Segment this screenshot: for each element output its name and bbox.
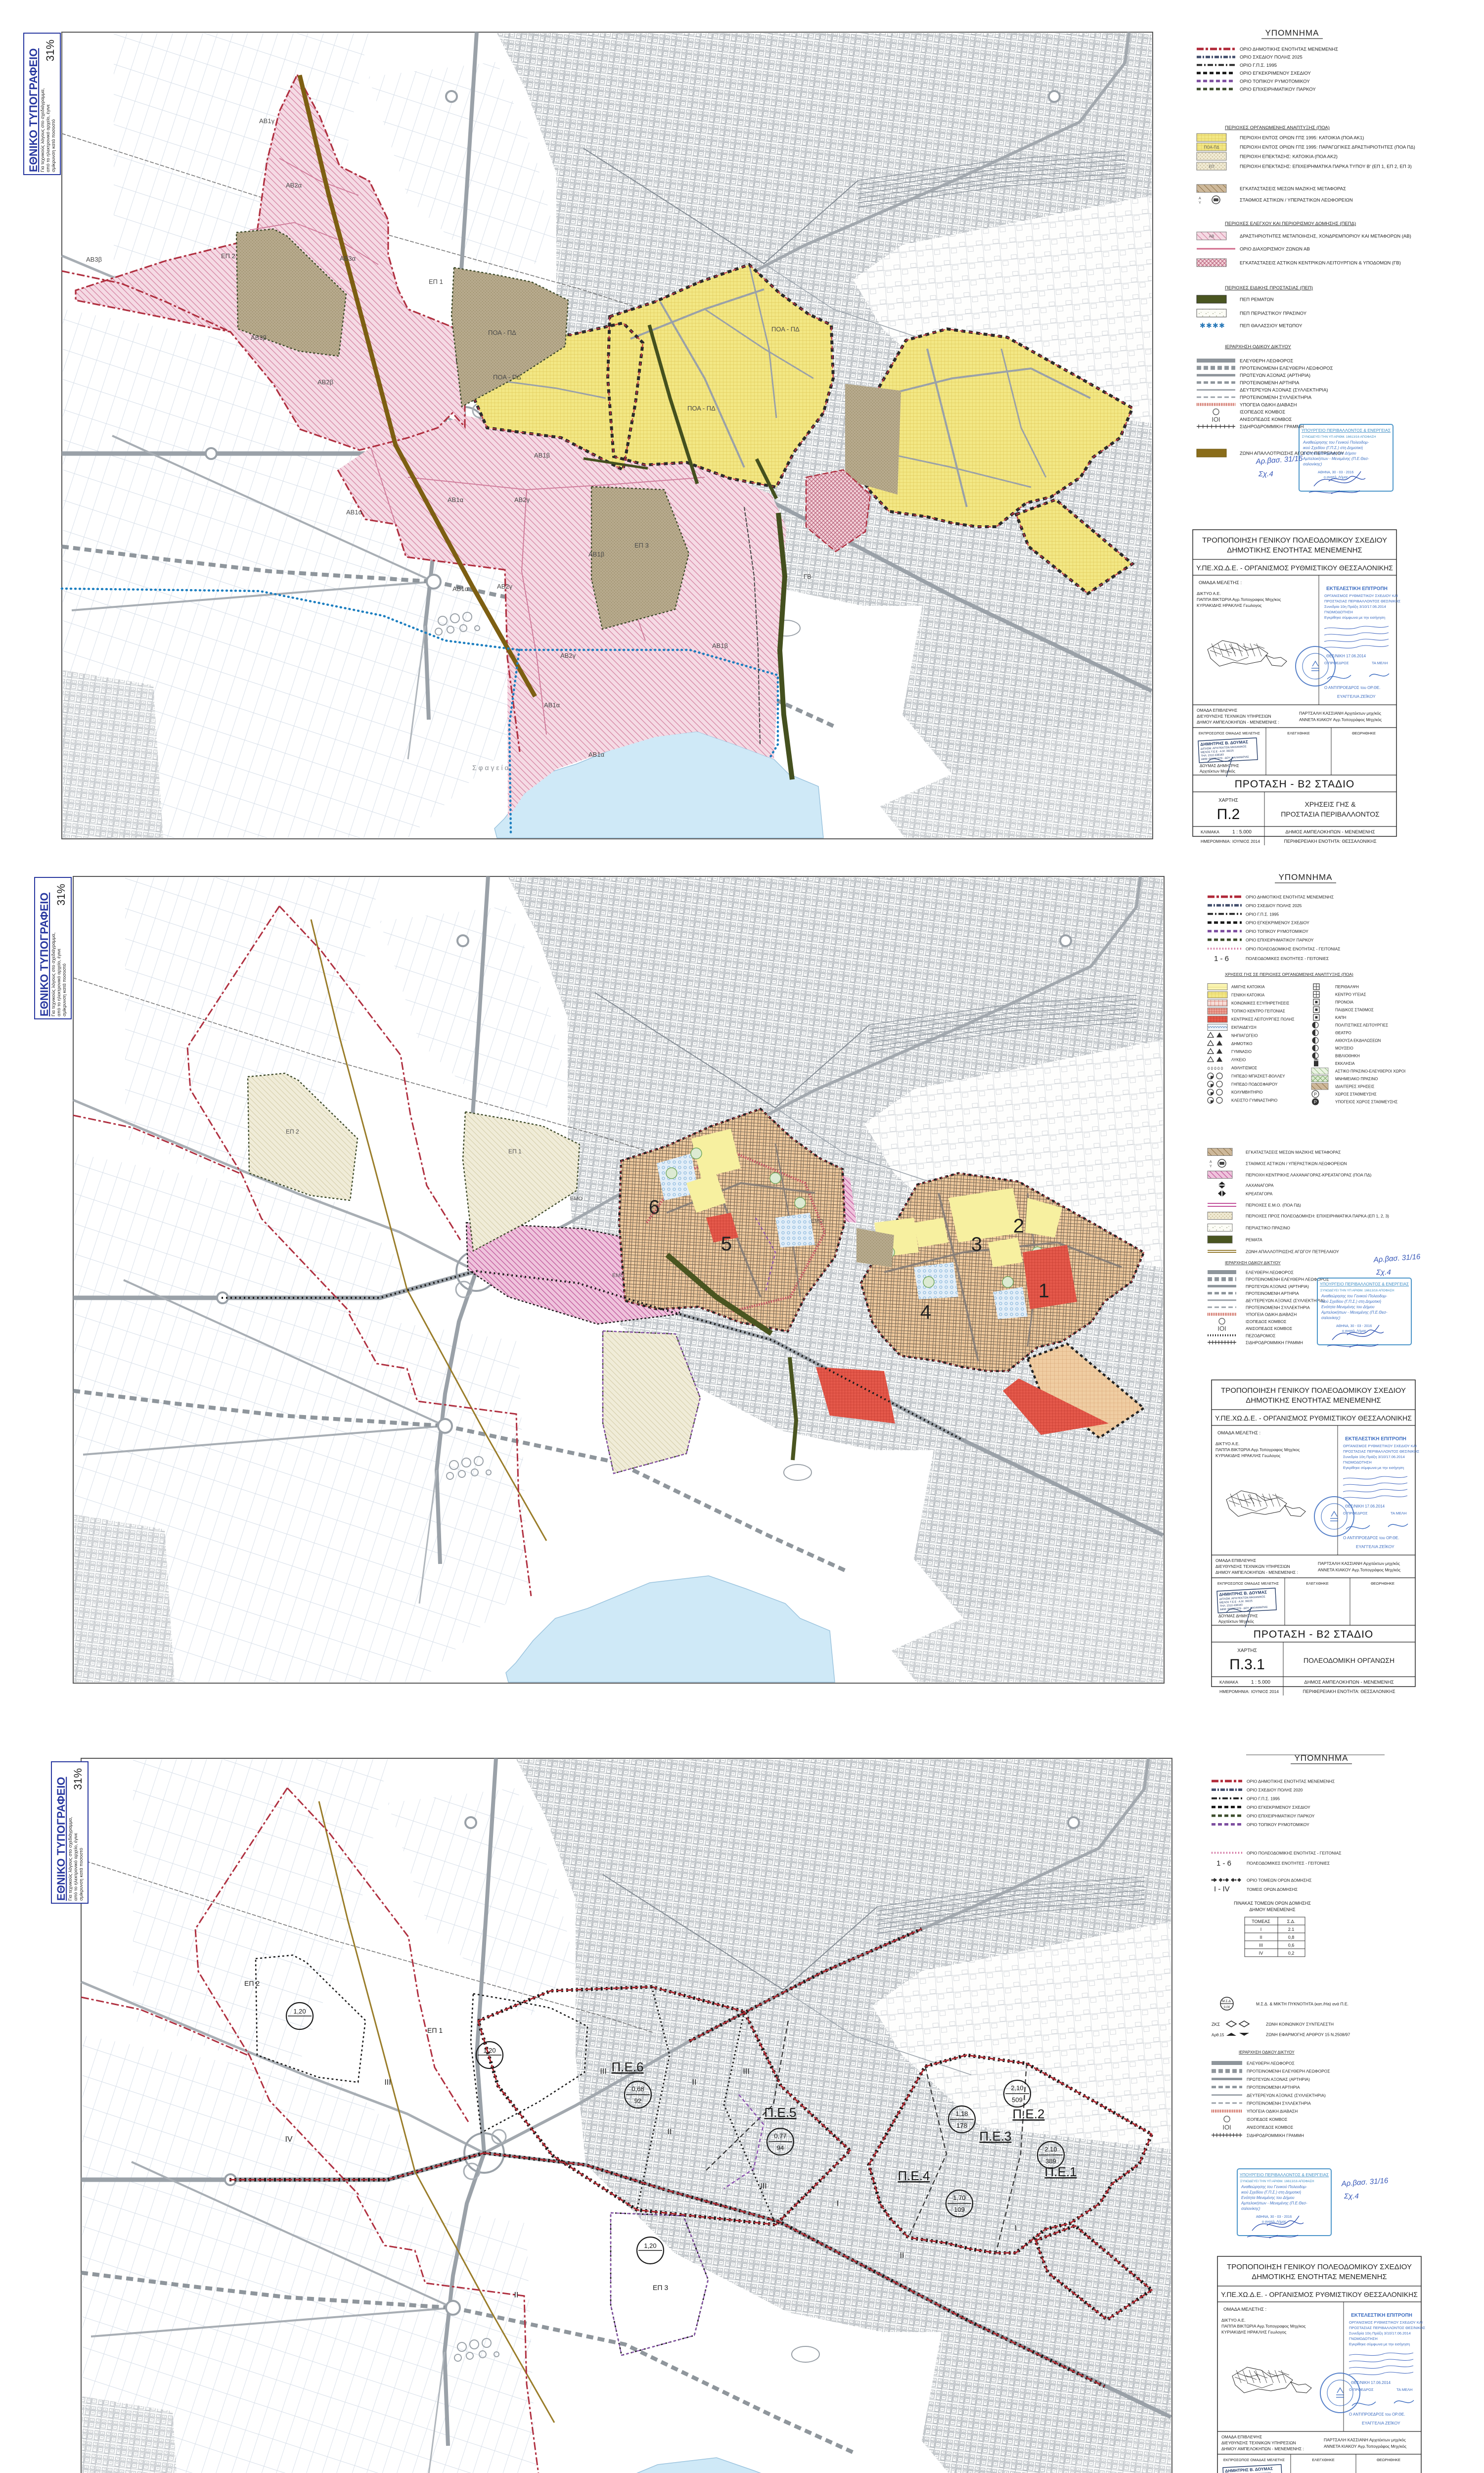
svg-text:ΙΔΙΑΙΤΕΡΕΣ ΧΡΗΣΕΙΣ: ΙΔΙΑΙΤΕΡΕΣ ΧΡΗΣΕΙΣ	[1335, 1085, 1374, 1089]
svg-text:ΟΡΙΟ ΕΓΚΕΚΡΙΜΕΝΟΥ ΣΧΕΔΙΟΥ: ΟΡΙΟ ΕΓΚΕΚΡΙΜΕΝΟΥ ΣΧΕΔΙΟΥ	[1240, 71, 1311, 76]
svg-text:ΙΟΙ: ΙΟΙ	[1217, 1325, 1226, 1332]
svg-text:σμίκρυνση κατά ποσοστό: σμίκρυνση κατά ποσοστό	[79, 1848, 84, 1901]
svg-text:ΠΡΟΣΤΑΣΙΑΣ ΠΕΡΙΒΑΛΛΟΝΤΟΣ ΘΕΣ/Ν: ΠΡΟΣΤΑΣΙΑΣ ΠΕΡΙΒΑΛΛΟΝΤΟΣ ΘΕΣ/ΝΙΚΗΣ	[1349, 2326, 1425, 2330]
svg-text:ΕΘΝΙΚΟ ΤΥΠΟΓΡΑΦΕΙΟ: ΕΘΝΙΚΟ ΤΥΠΟΓΡΑΦΕΙΟ	[27, 48, 40, 172]
svg-text:Αναθεώρησης του Γενικού Πολ: Αναθεώρησης του Γενικού Πολεοδομ-	[1303, 440, 1369, 445]
svg-text:✱: ✱	[1219, 321, 1225, 329]
svg-text:ΟΜΑΔΑ ΜΕΛΕΤΗΣ :: ΟΜΑΔΑ ΜΕΛΕΤΗΣ :	[1223, 2307, 1266, 2312]
svg-text:Ενότητα Μενεμένης του Δήμου: Ενότητα Μενεμένης του Δήμου	[1241, 2196, 1295, 2200]
svg-text:σαλονίκης): σαλονίκης)	[1303, 462, 1322, 466]
svg-text:ΠΡΟΤΕΙΝΟΜΕΝΗ ΣΥΛΛΕΚΤΗΡΙΑ: ΠΡΟΤΕΙΝΟΜΕΝΗ ΣΥΛΛΕΚΤΗΡΙΑ	[1246, 1305, 1310, 1310]
svg-text:Π.Ε.1: Π.Ε.1	[1044, 2164, 1077, 2179]
svg-text:ΟΡΙΟ ΕΠΙΧΕΙΡΗΜΑΤΙΚΟΥ ΠΑΡΚΟΥ: ΟΡΙΟ ΕΠΙΧΕΙΡΗΜΑΤΙΚΟΥ ΠΑΡΚΟΥ	[1240, 87, 1316, 92]
svg-text:Π.Ε.4: Π.Ε.4	[898, 2168, 930, 2183]
svg-text:ΟΡΙΟ ΕΠΙΧΕΙΡΗΜΑΤΙΚΟΥ ΠΑΡΚΟΥ: ΟΡΙΟ ΕΠΙΧΕΙΡΗΜΑΤΙΚΟΥ ΠΑΡΚΟΥ	[1246, 938, 1314, 943]
svg-text:Ο ΠΡΟΕΔΡΟΣ: Ο ΠΡΟΕΔΡΟΣ	[1324, 661, 1349, 665]
svg-text:Α: Α	[1199, 197, 1201, 200]
svg-text:ΥΠΟΓΕΙΑ ΟΔΙΚΗ ΔΙΑΒΑΣΗ: ΥΠΟΓΕΙΑ ΟΔΙΚΗ ΔΙΑΒΑΣΗ	[1246, 1312, 1297, 1317]
svg-text:ΥΠΟΥΡΓΕΙΟ ΠΕΡΙΒΑΛΛΟΝΤΟΣ & ΕΝΕΡ: ΥΠΟΥΡΓΕΙΟ ΠΕΡΙΒΑΛΛΟΝΤΟΣ & ΕΝΕΡΓΕΙΑΣ	[1320, 1282, 1409, 1286]
svg-text:ΠΕΡΙΟΧΕΣ ΕΙΔΙΚΗΣ ΠΡΟΣΤΑΣΙΑΣ (Π: ΠΕΡΙΟΧΕΣ ΕΙΔΙΚΗΣ ΠΡΟΣΤΑΣΙΑΣ (ΠΕΠ)	[1225, 285, 1313, 291]
svg-text:ΕΛΕΥΘΕΡΗ ΛΕΩΦΟΡΟΣ: ΕΛΕΥΘΕΡΗ ΛΕΩΦΟΡΟΣ	[1240, 359, 1293, 364]
svg-text:ΜΟΥΣΕΙΟ: ΜΟΥΣΕΙΟ	[1335, 1046, 1353, 1051]
svg-text:σαλονίκης): σαλονίκης)	[1321, 1316, 1341, 1320]
svg-text:ΟΡΙΟ ΣΧΕΔΙΟΥ ΠΟΛΗΣ 2025: ΟΡΙΟ ΣΧΕΔΙΟΥ ΠΟΛΗΣ 2025	[1246, 903, 1302, 908]
svg-text:ΙΣΟΠΕΔΟΣ ΚΟΜΒΟΣ: ΙΣΟΠΕΔΟΣ ΚΟΜΒΟΣ	[1247, 2117, 1287, 2122]
svg-text:ΑΝΙΣΟΠΕΔΟΣ ΚΟΜΒΟΣ: ΑΝΙΣΟΠΕΔΟΣ ΚΟΜΒΟΣ	[1240, 417, 1292, 422]
svg-text:ΔΙΚΤΥΟ Α.Ε.: ΔΙΚΤΥΟ Α.Ε.	[1221, 2318, 1246, 2323]
svg-text:ΑΒ1α: ΑΒ1α	[452, 585, 469, 593]
svg-text:ΤΑ ΜΕΛΗ: ΤΑ ΜΕΛΗ	[1372, 661, 1388, 665]
svg-text:ΠΕΡΙΘΑΛΨΗ: ΠΕΡΙΘΑΛΨΗ	[1335, 985, 1359, 989]
svg-text:0 0 0 0 0: 0 0 0 0 0	[1208, 1066, 1223, 1071]
svg-text:4: 4	[920, 1301, 931, 1323]
svg-text:ΕΚΠΡΟΣΩΠΟΣ ΟΜΑΔΑΣ ΜΕΛΕΤΗΣ: ΕΚΠΡΟΣΩΠΟΣ ΟΜΑΔΑΣ ΜΕΛΕΤΗΣ	[1217, 1581, 1279, 1586]
svg-text:Αμπελοκήπων - Μενεμένης (Π.Ε.Θ: Αμπελοκήπων - Μενεμένης (Π.Ε.Θεσ-	[1321, 1310, 1388, 1315]
svg-text:Ενότητα Μενεμένης του Δήμου: Ενότητα Μενεμένης του Δήμου	[1321, 1305, 1375, 1309]
svg-text:ΠΡΟΣΤΑΣΙΑΣ ΠΕΡΙΒΑΛΛΟΝΤΟΣ ΘΕΣ/Ν: ΠΡΟΣΤΑΣΙΑΣ ΠΕΡΙΒΑΛΛΟΝΤΟΣ ΘΕΣ/ΝΙΚΗΣ	[1343, 1449, 1419, 1454]
svg-text:P: P	[1314, 1092, 1317, 1097]
svg-text:ΠΡΟΤΑΣΗ - Β2 ΣΤΑΔΙΟ: ΠΡΟΤΑΣΗ - Β2 ΣΤΑΔΙΟ	[1254, 1629, 1374, 1640]
svg-text:31%: 31%	[72, 1768, 84, 1790]
svg-text:109: 109	[954, 2206, 965, 2213]
svg-text:ΚΟΙΝΩΝΙΚΕΣ ΕΞΥΠΗΡΕΤΗΣΕΙΣ: ΚΟΙΝΩΝΙΚΕΣ ΕΞΥΠΗΡΕΤΗΣΕΙΣ	[1231, 1001, 1289, 1006]
svg-text:ΖΩΝΗ ΕΦΑΡΜΟΓΗΣ ΑΡΘΡΟΥ 15 Ν.250: ΖΩΝΗ ΕΦΑΡΜΟΓΗΣ ΑΡΘΡΟΥ 15 Ν.2508/97	[1266, 2032, 1350, 2037]
svg-text:Ενότητα Μενεμένης του Δήμου: Ενότητα Μενεμένης του Δήμου	[1303, 451, 1356, 456]
svg-text:ΤΟΠΙΚΟ ΚΕΝΤΡΟ ΓΕΙΤΟΝΙΑΣ: ΤΟΠΙΚΟ ΚΕΝΤΡΟ ΓΕΙΤΟΝΙΑΣ	[1231, 1009, 1285, 1013]
svg-text:1,20: 1,20	[644, 2242, 656, 2249]
svg-text:ΔΗΜΟΣ ΑΜΠΕΛΟΚΗΠΩΝ - ΜΕΝΕΜΕΝΗΣ: ΔΗΜΟΣ ΑΜΠΕΛΟΚΗΠΩΝ - ΜΕΝΕΜΕΝΗΣ	[1304, 1680, 1394, 1685]
svg-text:31%: 31%	[44, 40, 56, 61]
svg-text:ΔΙΚΤΥΟ Α.Ε.: ΔΙΚΤΥΟ Α.Ε.	[1215, 1441, 1240, 1446]
svg-text:ΠΡΟΤΕΙΝΟΜΕΝΗ ΣΥΛΛΕΚΤΗΡΙΑ: ΠΡΟΤΕΙΝΟΜΕΝΗ ΣΥΛΛΕΚΤΗΡΙΑ	[1247, 2101, 1311, 2106]
svg-text:Σ φ α γ ε ί α: Σ φ α γ ε ί α	[472, 764, 509, 772]
svg-text:Αμπελοκήπων - Μενεμένης (Π.Ε.Θ: Αμπελοκήπων - Μενεμένης (Π.Ε.Θεσ-	[1241, 2201, 1307, 2205]
svg-text:ΣΙΔΗΡΟΔΡΟΜΜΙΚΗ ΓΡΑΜΜΗ: ΣΙΔΗΡΟΔΡΟΜΜΙΚΗ ΓΡΑΜΜΗ	[1240, 424, 1304, 430]
svg-text:ΟΜΑΔΑ ΕΠΙΒΛΕΨΗΣ: ΟΜΑΔΑ ΕΠΙΒΛΕΨΗΣ	[1197, 708, 1237, 713]
svg-text:ΥΠΟΥΡΓΕΙΟ ΠΕΡΙΒΑΛΛΟΝΤΟΣ & ΕΝΕΡ: ΥΠΟΥΡΓΕΙΟ ΠΕΡΙΒΑΛΛΟΝΤΟΣ & ΕΝΕΡΓΕΙΑΣ	[1240, 2172, 1329, 2177]
svg-text:1 - 6: 1 - 6	[1216, 1859, 1231, 1868]
svg-text:ΣΙΔΗΡΟΔΡΟΜΜΙΚΗ ΓΡΑΜΜΗ: ΣΙΔΗΡΟΔΡΟΜΜΙΚΗ ΓΡΑΜΜΗ	[1247, 2133, 1304, 2138]
svg-text:ΑΒ3β: ΑΒ3β	[251, 334, 267, 341]
svg-text:ΟΡΓΑΝΙΣΜΟΣ ΡΥΘΜΙΣΤΙΚΟΥ ΣΧΕΔΙΟΥ: ΟΡΓΑΝΙΣΜΟΣ ΡΥΘΜΙΣΤΙΚΟΥ ΣΧΕΔΙΟΥ ΚΑΙ	[1324, 594, 1398, 598]
svg-text:ΔΕΥΤΕΡΕΥΩΝ ΑΞΟΝΑΣ (ΣΥΛΛΕΚΤΗΡΙΑ: ΔΕΥΤΕΡΕΥΩΝ ΑΞΟΝΑΣ (ΣΥΛΛΕΚΤΗΡΙΑ)	[1247, 2093, 1326, 2098]
svg-text:ΕΛΕΓΧΘΗΚΕ: ΕΛΕΓΧΘΗΚΕ	[1287, 731, 1309, 735]
svg-text:ΠΡΟΣΤΑΣΙΑΣ ΠΕΡΙΒΑΛΛΟΝΤΟΣ ΘΕΣ/Ν: ΠΡΟΣΤΑΣΙΑΣ ΠΕΡΙΒΑΛΛΟΝΤΟΣ ΘΕΣ/ΝΙΚΗΣ	[1324, 599, 1400, 603]
svg-text:ΠΕΠ ΘΑΛΑΣΣΙΟΥ ΜΕΤΩΠΟΥ: ΠΕΠ ΘΑΛΑΣΣΙΟΥ ΜΕΤΩΠΟΥ	[1240, 323, 1303, 329]
svg-text:1 : 5.000: 1 : 5.000	[1251, 1680, 1270, 1685]
svg-text:Εγκρίθηκε σύμφωνα με την εισήγ: Εγκρίθηκε σύμφωνα με την εισήγηση	[1343, 1465, 1404, 1470]
svg-text:Αρχιτέκτων Μηχ/κός: Αρχιτέκτων Μηχ/κός	[1218, 1619, 1254, 1624]
svg-text:ΑΒ1β: ΑΒ1β	[588, 550, 604, 558]
svg-text:ΕΠ 1: ΕΠ 1	[508, 1148, 522, 1155]
svg-text:ΘΕΣ/ΝΙΚΗ 17.06.2014: ΘΕΣ/ΝΙΚΗ 17.06.2014	[1345, 1504, 1385, 1509]
svg-text:ΓΗΠΕΔΟ ΜΠΑΣΚΕΤ-ΒΟΛΛΕΥ: ΓΗΠΕΔΟ ΜΠΑΣΚΕΤ-ΒΟΛΛΕΥ	[1231, 1074, 1285, 1078]
svg-text:ΙΣΟΠΕΔΟΣ ΚΟΜΒΟΣ: ΙΣΟΠΕΔΟΣ ΚΟΜΒΟΣ	[1246, 1319, 1286, 1324]
svg-text:ΑΒ2γ: ΑΒ2γ	[497, 583, 513, 590]
svg-text:ΑΘΗΝΑ, 30 - 03 - 2016: ΑΘΗΝΑ, 30 - 03 - 2016	[1318, 471, 1353, 474]
svg-text:ΣΤΑΘΜΟΣ ΑΣΤΙΚΩΝ / ΥΠΕΡΑΣΤΙΚΩΝ: ΣΤΑΘΜΟΣ ΑΣΤΙΚΩΝ / ΥΠΕΡΑΣΤΙΚΩΝ ΛΕΩΦΟΡΕΙΩΝ	[1240, 198, 1353, 203]
svg-text:1,20: 1,20	[293, 2008, 306, 2015]
svg-text:ΠΙΝΑΚΑΣ ΤΟΜΕΩΝ ΟΡΩΝ ΔΟΜΗΣΗΣ: ΠΙΝΑΚΑΣ ΤΟΜΕΩΝ ΟΡΩΝ ΔΟΜΗΣΗΣ	[1234, 1901, 1311, 1906]
svg-text:από το ηλεκτρονικό αρχείο, έγι: από το ηλεκτρονικό αρχείο, έγινε	[73, 1832, 79, 1901]
svg-text:ΔΙΕΥΘΥΝΣΗΣ ΤΕΧΝΙΚΩΝ ΥΠΗΡΕΣΙΩΝ: ΔΙΕΥΘΥΝΣΗΣ ΤΕΧΝΙΚΩΝ ΥΠΗΡΕΣΙΩΝ	[1221, 2440, 1296, 2445]
svg-text:ΟΡΙΟ ΕΓΚΕΚΡΙΜΕΝΟΥ ΣΧΕΔΙΟΥ: ΟΡΙΟ ΕΓΚΕΚΡΙΜΕΝΟΥ ΣΧΕΔΙΟΥ	[1246, 920, 1309, 925]
svg-text:Για τεχνικούς λόγους στο σ: Για τεχνικούς λόγους στο σχεδιάγραμμα,	[51, 932, 56, 1016]
svg-text:ΡΕΜΑΤΑ: ΡΕΜΑΤΑ	[1246, 1237, 1262, 1242]
svg-text:ΗΜΕΡΟΜΗΝΙΑ:: ΗΜΕΡΟΜΗΝΙΑ:	[1219, 1689, 1250, 1694]
svg-text:ΟΡΙΟ ΔΙΑΧΩΡΙΣΜΟΥ ΖΩΝΩΝ ΑΒ: ΟΡΙΟ ΔΙΑΧΩΡΙΣΜΟΥ ΖΩΝΩΝ ΑΒ	[1240, 247, 1310, 252]
svg-text:ΘΕΩΡΗΘΗΚΕ: ΘΕΩΡΗΘΗΚΕ	[1352, 731, 1376, 735]
svg-text:ΙΙΙ: ΙΙΙ	[384, 2078, 391, 2087]
svg-text:ΙΙΙ: ΙΙΙ	[743, 2067, 749, 2076]
svg-text:ΔΕΥΤΕΡΕΥΩΝ ΑΞΟΝΑΣ (ΣΥΛΛΕΚΤΗΡΙΑ: ΔΕΥΤΕΡΕΥΩΝ ΑΞΟΝΑΣ (ΣΥΛΛΕΚΤΗΡΙΑ)	[1240, 388, 1328, 393]
svg-text:178: 178	[956, 2122, 967, 2129]
svg-text:ΑΒ1β: ΑΒ1β	[712, 642, 728, 649]
svg-text:ΥΠΟΓΕΙΟΣ ΧΩΡΟΣ ΣΤΑΘΜΕΥΣΗΣ: ΥΠΟΓΕΙΟΣ ΧΩΡΟΣ ΣΤΑΘΜΕΥΣΗΣ	[1335, 1100, 1397, 1104]
svg-text:ΜΝΗΜΕΙΑΚΟ ΠΡΑΣΙΝΟ: ΜΝΗΜΕΙΑΚΟ ΠΡΑΣΙΝΟ	[1335, 1077, 1378, 1081]
svg-text:ΠΕΡΙΟΧΗ ΚΕΝΤΡΙΚΗΣ ΛΑΧΑΝΑΓΟΡΑΣ-: ΠΕΡΙΟΧΗ ΚΕΝΤΡΙΚΗΣ ΛΑΧΑΝΑΓΟΡΑΣ-ΚΡΕΑΤΑΓΟΡΑ…	[1246, 1173, 1372, 1178]
svg-text:ΕΠ: ΕΠ	[1209, 165, 1214, 169]
svg-text:ΟΡΓΑΝΙΣΜΟΣ ΡΥΘΜΙΣΤΙΚΟΥ ΣΧΕΔΙΟΥ: ΟΡΓΑΝΙΣΜΟΣ ΡΥΘΜΙΣΤΙΚΟΥ ΣΧΕΔΙΟΥ ΚΑΙ	[1349, 2320, 1423, 2325]
svg-text:ΑΘΗΝΑ, 30 - 03 - 2016: ΑΘΗΝΑ, 30 - 03 - 2016	[1336, 1325, 1372, 1328]
svg-text:ΚΟΛΥΜΒΗΤΗΡΙΟ: ΚΟΛΥΜΒΗΤΗΡΙΟ	[1231, 1090, 1262, 1095]
svg-text:ΑΒ1α: ΑΒ1α	[448, 496, 464, 504]
svg-text:ΥΠΟΓΕΙΑ ΟΔΙΚΗ ΔΙΑΒΑΣΗ: ΥΠΟΓΕΙΑ ΟΔΙΚΗ ΔΙΑΒΑΣΗ	[1247, 2109, 1298, 2114]
svg-text:ικού Σχεδίου (Γ.Π.Σ.) στη: ικού Σχεδίου (Γ.Π.Σ.) στη Δημοτική	[1241, 2190, 1302, 2195]
svg-text:ΔΗΜΟΤΙΚΗΣ ΕΝΟΤΗΤΑΣ ΜΕΝΕΜΕΝΗΣ: ΔΗΜΟΤΙΚΗΣ ΕΝΟΤΗΤΑΣ ΜΕΝΕΜΕΝΗΣ	[1252, 2273, 1387, 2281]
svg-text:Σχ.4: Σχ.4	[1344, 2192, 1359, 2200]
svg-text:ικού Σχεδίου (Γ.Π.Σ.) στη: ικού Σχεδίου (Γ.Π.Σ.) στη Δημοτική	[1303, 446, 1363, 450]
svg-text:Μ.Σ.Δ.: Μ.Σ.Δ.	[1222, 2000, 1231, 2003]
svg-text:ΠΟΛΕΟΔΟΜΙΚΕΣ ΕΝΟΤΗΤΕΣ - ΓΕΙΤΟΝ: ΠΟΛΕΟΔΟΜΙΚΕΣ ΕΝΟΤΗΤΕΣ - ΓΕΙΤΟΝΙΕΣ	[1246, 956, 1329, 961]
svg-text:Για τεχνικούς λόγους στο σ: Για τεχνικούς λόγους στο σχεδιάγραμμα,	[68, 1817, 73, 1901]
svg-text:Π.2: Π.2	[1217, 806, 1240, 823]
svg-text:ΙΙ: ΙΙ	[514, 2291, 519, 2299]
svg-text:ΙΙΙ: ΙΙΙ	[1259, 1943, 1263, 1948]
svg-text:ΥΠΟΜΝΗΜΑ: ΥΠΟΜΝΗΜΑ	[1294, 1753, 1348, 1763]
svg-text:ΙΙ: ΙΙ	[1259, 1935, 1262, 1940]
svg-text:ΠΡΟΣΤΑΣΙΑ ΠΕΡΙΒΑΛΛΟΝΤΟΣ: ΠΡΟΣΤΑΣΙΑ ΠΕΡΙΒΑΛΛΟΝΤΟΣ	[1281, 810, 1380, 818]
svg-text:ΠΕΡΙΟΧΕΣ ΕΛΕΓΧΟΥ ΚΑΙ ΠΕΡΙΟΡΙΣΜ: ΠΕΡΙΟΧΕΣ ΕΛΕΓΧΟΥ ΚΑΙ ΠΕΡΙΟΡΙΣΜΟΥ ΔΟΜΗΣΗΣ…	[1225, 221, 1356, 227]
svg-text:ΕΘΝΙΚΟ ΤΥΠΟΓΡΑΦΕΙΟ: ΕΘΝΙΚΟ ΤΥΠΟΓΡΑΦΕΙΟ	[55, 1777, 67, 1901]
svg-text:ΠΡΟΤΕΙΝΟΜΕΝΗ ΣΥΛΛΕΚΤΗΡΙΑ: ΠΡΟΤΕΙΝΟΜΕΝΗ ΣΥΛΛΕΚΤΗΡΙΑ	[1240, 395, 1312, 401]
svg-text:ΠΡΟΤΑΣΗ - Β2 ΣΤΑΔΙΟ: ΠΡΟΤΑΣΗ - Β2 ΣΤΑΔΙΟ	[1235, 779, 1355, 790]
svg-text:Υ.ΠΕ.ΧΩ.Δ.Ε. - ΟΡΓΑΝΙΣΜΟΣ ΡΥΘΜ: Υ.ΠΕ.ΧΩ.Δ.Ε. - ΟΡΓΑΝΙΣΜΟΣ ΡΥΘΜΙΣΤΙΚΟΥ ΘΕ…	[1196, 564, 1393, 572]
svg-text:ΕΓΚΑΤΑΣΤΑΣΕΙΣ ΜΕΣΩΝ ΜΑΖΙΚΗΣ ΜΕ: ΕΓΚΑΤΑΣΤΑΣΕΙΣ ΜΕΣΩΝ ΜΑΖΙΚΗΣ ΜΕΤΑΦΟΡΑΣ	[1246, 1150, 1341, 1155]
svg-text:ΚΛΙΜΑΚΑ: ΚΛΙΜΑΚΑ	[1219, 1680, 1238, 1685]
svg-text:ΑΒ: ΑΒ	[1209, 234, 1214, 239]
svg-text:ΑΒ1α: ΑΒ1α	[588, 751, 605, 758]
svg-text:ΚΕΝΤΡΙΚΕΣ ΛΕΙΤΟΥΡΓΙΕΣ ΠΟΛΗΣ: ΚΕΝΤΡΙΚΕΣ ΛΕΙΤΟΥΡΓΙΕΣ ΠΟΛΗΣ	[1231, 1017, 1295, 1022]
svg-text:ΧΑΡΤΗΣ: ΧΑΡΤΗΣ	[1218, 798, 1238, 803]
svg-text:Π.Ε.2: Π.Ε.2	[1012, 2107, 1044, 2121]
svg-text:ΟΡΙΟ ΠΟΛΕΟΔΟΜΙΚΗΣ ΕΝΟΤΗΤΑΣ - Γ: ΟΡΙΟ ΠΟΛΕΟΔΟΜΙΚΗΣ ΕΝΟΤΗΤΑΣ - ΓΕΙΤΟΝΙΑΣ	[1247, 1851, 1342, 1856]
svg-text:σαλονίκης): σαλονίκης)	[1241, 2206, 1260, 2211]
svg-text:✱: ✱	[1200, 321, 1206, 329]
svg-text:3: 3	[971, 1234, 982, 1255]
svg-text:ΕΜΟ: ΕΜΟ	[570, 1196, 583, 1202]
svg-text:ΕΛΕΥΘΕΡΗ ΛΕΩΦΟΡΟΣ: ΕΛΕΥΘΕΡΗ ΛΕΩΦΟΡΟΣ	[1247, 2061, 1295, 2066]
svg-text:0,2: 0,2	[1288, 1951, 1295, 1956]
svg-text:ΚΥΡΙΑΚΙΔΗΣ ΗΡΑΚΛΗΣ Γεωλογος: ΚΥΡΙΑΚΙΔΗΣ ΗΡΑΚΛΗΣ Γεωλογος	[1221, 2330, 1286, 2335]
svg-text:ΠΑΡΤΣΑΛΗ ΚΑΣΣΙΑΝΗ Αρχιτέκτων: ΠΑΡΤΣΑΛΗ ΚΑΣΣΙΑΝΗ Αρχιτέκτων μηχ/κός	[1299, 711, 1381, 716]
svg-text:ΠΡΩΤΕΥΩΝ ΑΞΟΝΑΣ (ΑΡΤΗΡΙΑ): ΠΡΩΤΕΥΩΝ ΑΞΟΝΑΣ (ΑΡΤΗΡΙΑ)	[1240, 373, 1310, 378]
svg-text:Υ.ΠΕ.ΧΩ.Δ.Ε. - ΟΡΓΑΝΙΣΜΟΣ ΡΥΘΜ: Υ.ΠΕ.ΧΩ.Δ.Ε. - ΟΡΓΑΝΙΣΜΟΣ ΡΥΘΜΙΣΤΙΚΟΥ ΘΕ…	[1221, 2290, 1418, 2298]
svg-text:ΖΩΝΗ ΑΠΑΛΛΟΤΡΙΩΣΗΣ ΑΓΩΓΟΥ ΠΕΤΡ: ΖΩΝΗ ΑΠΑΛΛΟΤΡΙΩΣΗΣ ΑΓΩΓΟΥ ΠΕΤΡΕΛΑΙΟΥ	[1246, 1249, 1339, 1254]
svg-text:ΧΡΗΣΕΙΣ ΓΗΣ &: ΧΡΗΣΕΙΣ ΓΗΣ &	[1305, 800, 1356, 808]
svg-text:2.1: 2.1	[1288, 1927, 1295, 1932]
svg-text:389: 389	[1045, 2157, 1056, 2165]
svg-text:ΤΡΟΠΟΠΟΙΗΣΗ ΓΕΝΙΚΟΥ ΠΟΛΕΟΔΟΜΙΚ: ΤΡΟΠΟΠΟΙΗΣΗ ΓΕΝΙΚΟΥ ΠΟΛΕΟΔΟΜΙΚΟΥ ΣΧΕΔΙΟΥ	[1221, 1386, 1406, 1395]
svg-text:ΤΑ ΜΕΛΗ: ΤΑ ΜΕΛΗ	[1396, 2387, 1412, 2392]
svg-text:ΑΒ2γ: ΑΒ2γ	[514, 496, 530, 504]
svg-text:ΔΟΥΜΑΣ ΔΗΜΗΤΡΗΣ: ΔΟΥΜΑΣ ΔΗΜΗΤΡΗΣ	[1218, 1614, 1258, 1618]
svg-text:ΠΕΡΙΟΧΕΣ ΠΡΟΣ ΠΟΛΕΟΔΟΜΗΣΗ: ΕΠΙ: ΠΕΡΙΟΧΕΣ ΠΡΟΣ ΠΟΛΕΟΔΟΜΗΣΗ: ΕΠΙΧΕΙΡΗΜΑΤΙΚ…	[1246, 1214, 1389, 1219]
svg-text:ΑΙΘΟΥΣΑ ΕΚΔΗΛΩΣΕΩΝ: ΑΙΘΟΥΣΑ ΕΚΔΗΛΩΣΕΩΝ	[1335, 1039, 1381, 1043]
svg-text:ΟΜΑΔΑ ΕΠΙΒΛΕΨΗΣ: ΟΜΑΔΑ ΕΠΙΒΛΕΨΗΣ	[1221, 2434, 1262, 2439]
svg-text:ΕΓΚΑΤΑΣΤΑΣΕΙΣ ΜΕΣΩΝ ΜΑΖΙΚΗΣ ΜΕ: ΕΓΚΑΤΑΣΤΑΣΕΙΣ ΜΕΣΩΝ ΜΑΖΙΚΗΣ ΜΕΤΑΦΟΡΑΣ	[1240, 186, 1346, 192]
svg-text:ΚΛΕΙΣΤΟ ΓΥΜΝΑΣΤΗΡΙΟ: ΚΛΕΙΣΤΟ ΓΥΜΝΑΣΤΗΡΙΟ	[1231, 1099, 1277, 1103]
svg-text:Ι - IV: Ι - IV	[1214, 1885, 1230, 1893]
svg-text:ΔΗΜΟΥ ΜΕΝΕΜΕΝΗΣ: ΔΗΜΟΥ ΜΕΝΕΜΕΝΗΣ	[1249, 1907, 1296, 1912]
svg-text:ΟΡΙΟ ΠΟΛΕΟΔΟΜΙΚΗΣ ΕΝΟΤΗΤΑΣ - Γ: ΟΡΙΟ ΠΟΛΕΟΔΟΜΙΚΗΣ ΕΝΟΤΗΤΑΣ - ΓΕΙΤΟΝΙΑΣ	[1246, 947, 1341, 952]
svg-text:ΕΛΕΥΘΕΡΗ ΛΕΩΦΟΡΟΣ: ΕΛΕΥΘΕΡΗ ΛΕΩΦΟΡΟΣ	[1246, 1270, 1294, 1275]
svg-text:2: 2	[1013, 1215, 1024, 1237]
svg-text:1,18: 1,18	[955, 2110, 968, 2117]
svg-text:Ο ΠΡΟΕΔΡΟΣ: Ο ΠΡΟΕΔΡΟΣ	[1349, 2387, 1374, 2392]
svg-text:Π.3.1: Π.3.1	[1229, 1656, 1265, 1673]
svg-text:ΚΡΕΑΤΑΓΟΡΑ: ΚΡΕΑΤΑΓΟΡΑ	[1246, 1191, 1273, 1196]
svg-text:Υ: Υ	[1199, 201, 1201, 205]
svg-text:ΑΜΙΓΗΣ ΚΑΤΟΙΚΙΑ: ΑΜΙΓΗΣ ΚΑΤΟΙΚΙΑ	[1231, 985, 1265, 989]
svg-text:ΚΑΠΗ: ΚΑΠΗ	[1335, 1015, 1346, 1020]
svg-text:ΕΚΤΕΛΕΣΤΙΚΗ ΕΠΙΤΡΟΠΗ: ΕΚΤΕΛΕΣΤΙΚΗ ΕΠΙΤΡΟΠΗ	[1345, 1436, 1406, 1442]
svg-text:Ι: Ι	[1015, 2224, 1017, 2233]
svg-text:ΟΡΙΟ ΕΓΚΕΚΡΙΜΕΝΟΥ ΣΧΕΔΙΟΥ: ΟΡΙΟ ΕΓΚΕΚΡΙΜΕΝΟΥ ΣΧΕΔΙΟΥ	[1247, 1805, 1310, 1810]
svg-text:ΔΗΜΟΥ ΑΜΠΕΛΟΚΗΠΩΝ - ΜΕΝΕΜΕΝΗΣ: ΔΗΜΟΥ ΑΜΠΕΛΟΚΗΠΩΝ - ΜΕΝΕΜΕΝΗΣ :	[1215, 1570, 1298, 1575]
svg-text:ΟΡΙΟ ΕΠΙΧΕΙΡΗΜΑΤΙΚΟΥ ΠΑΡΚΟΥ: ΟΡΙΟ ΕΠΙΧΕΙΡΗΜΑΤΙΚΟΥ ΠΑΡΚΟΥ	[1247, 1814, 1315, 1819]
svg-text:σμίκρυνση κατά ποσοστό: σμίκρυνση κατά ποσοστό	[62, 963, 67, 1016]
svg-text:ΕΠ 3: ΕΠ 3	[653, 2284, 668, 2291]
svg-text:ΧΑΡΤΗΣ: ΧΑΡΤΗΣ	[1237, 1648, 1257, 1653]
svg-text:ΙΙ: ΙΙ	[900, 2251, 904, 2260]
svg-text:ΑΘΛΗΤΙΣΜΟΣ: ΑΘΛΗΤΙΣΜΟΣ	[1231, 1066, 1257, 1070]
svg-text:ΕΠ 1: ΕΠ 1	[427, 2026, 443, 2034]
svg-text:2,10: 2,10	[1044, 2146, 1057, 2153]
svg-text:ΠΕΡΙΑΣΤΙΚΟ ΠΡΑΣΙΝΟ: ΠΕΡΙΑΣΤΙΚΟ ΠΡΑΣΙΝΟ	[1246, 1226, 1290, 1231]
svg-text:ΑΘΗΝΑ, 30 - 03 - 2016: ΑΘΗΝΑ, 30 - 03 - 2016	[1256, 2215, 1292, 2219]
svg-text:ΤΑ ΜΕΛΗ: ΤΑ ΜΕΛΗ	[1391, 1511, 1406, 1515]
svg-text:ΠΕΡΙΟΧΕΣ Ε.Μ.Ο. (ΠΟΑ ΠΔ): ΠΕΡΙΟΧΕΣ Ε.Μ.Ο. (ΠΟΑ ΠΔ)	[1246, 1203, 1301, 1208]
svg-text:ΠΕΡΙΟΧΗ ΕΠΕΚΤΑΣΗΣ: ΚΑΤΟΙΚΙΑ (Π: ΠΕΡΙΟΧΗ ΕΠΕΚΤΑΣΗΣ: ΚΑΤΟΙΚΙΑ (ΠΟΑ ΑΚ2)	[1240, 154, 1338, 160]
svg-text:ΤΡΟΠΟΠΟΙΗΣΗ ΓΕΝΙΚΟΥ ΠΟΛΕΟΔΟΜΙΚ: ΤΡΟΠΟΠΟΙΗΣΗ ΓΕΝΙΚΟΥ ΠΟΛΕΟΔΟΜΙΚΟΥ ΣΧΕΔΙΟΥ	[1227, 2263, 1412, 2271]
svg-text:ΑΝΙΣΟΠΕΔΟΣ ΚΟΜΒΟΣ: ΑΝΙΣΟΠΕΔΟΣ ΚΟΜΒΟΣ	[1247, 2125, 1293, 2130]
svg-text:92: 92	[634, 2097, 641, 2105]
svg-text:ΔΡΑΣΤΗΡΙΟΤΗΤΕΣ ΜΕΤΑΠΟΙΗΣΗΣ, ΧΟ: ΔΡΑΣΤΗΡΙΟΤΗΤΕΣ ΜΕΤΑΠΟΙΗΣΗΣ, ΧΟΝΔΡΕΜΠΟΡΙΟ…	[1240, 234, 1411, 239]
svg-text:ΔΟΥΜΑΣ ΔΗΜΗΤΡΗΣ: ΔΟΥΜΑΣ ΔΗΜΗΤΡΗΣ	[1200, 764, 1239, 768]
svg-text:Αμπελοκήπων - Μενεμένης (Π.Ε.Θ: Αμπελοκήπων - Μενεμένης (Π.Ε.Θεσ-	[1303, 457, 1369, 461]
svg-text:ΙΟΙ: ΙΟΙ	[1212, 415, 1220, 423]
svg-text:ΠΡΟΤΕΙΝΟΜΕΝΗ ΑΡΤΗΡΙΑ: ΠΡΟΤΕΙΝΟΜΕΝΗ ΑΡΤΗΡΙΑ	[1246, 1291, 1299, 1296]
svg-text:ΑΝΝΕΤΑ ΚΙΑΚΟΥ Αγρ.Τοπογράφος: ΑΝΝΕΤΑ ΚΙΑΚΟΥ Αγρ.Τοπογράφος Μηχ/κός	[1324, 2444, 1406, 2449]
svg-text:ΘΕΩΡΗΘΗΚΕ: ΘΕΩΡΗΘΗΚΕ	[1371, 1581, 1394, 1586]
svg-text:ΟΡΙΟ ΔΗΜΟΤΙΚΗΣ ΕΝΟΤΗΤΑΣ ΜΕΝΕΜΕ: ΟΡΙΟ ΔΗΜΟΤΙΚΗΣ ΕΝΟΤΗΤΑΣ ΜΕΝΕΜΕΝΗΣ	[1240, 47, 1338, 52]
svg-text:ΠΟΛΕΟΔΟΜΙΚΕΣ ΕΝΟΤΗΤΕΣ - ΓΕΙΤΟΝ: ΠΟΛΕΟΔΟΜΙΚΕΣ ΕΝΟΤΗΤΕΣ - ΓΕΙΤΟΝΙΕΣ	[1247, 1861, 1330, 1866]
svg-text:ΑΣΤΙΚΟ ΠΡΑΣΙΝΟ-ΕΛΕΥΘΕΡΟΙ ΧΩΡΟΙ: ΑΣΤΙΚΟ ΠΡΑΣΙΝΟ-ΕΛΕΥΘΕΡΟΙ ΧΩΡΟΙ	[1335, 1069, 1405, 1074]
svg-text:ΟΡΙΟ Γ.Π.Σ. 1995: ΟΡΙΟ Γ.Π.Σ. 1995	[1247, 1796, 1280, 1801]
svg-text:ΙΕΡΑΡΧΗΣΗ ΟΔΙΚΟΥ ΔΙΚΤΥΟΥ: ΙΕΡΑΡΧΗΣΗ ΟΔΙΚΟΥ ΔΙΚΤΥΟΥ	[1225, 344, 1291, 350]
svg-text:ΓΗΠΕΔΟ ΠΟΔΟΣΦΑΙΡΟΥ: ΓΗΠΕΔΟ ΠΟΔΟΣΦΑΙΡΟΥ	[1231, 1082, 1278, 1087]
svg-text:0,68: 0,68	[631, 2085, 644, 2093]
svg-text:Υ.ΠΕ.ΧΩ.Δ.Ε. - ΟΡΓΑΝΙΣΜΟΣ ΡΥΘΜ: Υ.ΠΕ.ΧΩ.Δ.Ε. - ΟΡΓΑΝΙΣΜΟΣ ΡΥΘΜΙΣΤΙΚΟΥ ΘΕ…	[1215, 1414, 1412, 1422]
svg-text:ΕΛΕΓΧΘΗΚΕ: ΕΛΕΓΧΘΗΚΕ	[1306, 1581, 1328, 1586]
svg-text:Αρχιτέκτων Μηχ/κός: Αρχιτέκτων Μηχ/κός	[1200, 769, 1235, 774]
svg-text:✱: ✱	[1213, 321, 1218, 329]
svg-text:6: 6	[649, 1196, 660, 1218]
svg-text:Π.Ε.3: Π.Ε.3	[979, 2129, 1011, 2144]
svg-text:ΠΡΟΤΕΙΝΟΜΕΝΗ ΕΛΕΥΘΕΡΗ ΛΕΩΦΟΡΟΣ: ΠΡΟΤΕΙΝΟΜΕΝΗ ΕΛΕΥΘΕΡΗ ΛΕΩΦΟΡΟΣ	[1247, 2069, 1330, 2074]
svg-text:ΠΑΡΤΣΑΛΗ ΚΑΣΣΙΑΝΗ Αρχιτέκτων: ΠΑΡΤΣΑΛΗ ΚΑΣΣΙΑΝΗ Αρχιτέκτων μηχ/κός	[1324, 2437, 1406, 2442]
svg-text:ΥΠΟΜΝΗΜΑ: ΥΠΟΜΝΗΜΑ	[1265, 28, 1319, 38]
svg-text:ΠΡΟΤΕΙΝΟΜΕΝΗ ΕΛΕΥΘΕΡΗ ΛΕΩΦΟΡΟΣ: ΠΡΟΤΕΙΝΟΜΕΝΗ ΕΛΕΥΘΕΡΗ ΛΕΩΦΟΡΟΣ	[1240, 366, 1333, 371]
svg-text:Ο ΑΝΤΙΠΡΟΕΔΡΟΣ του ΟΡ.ΘΕ.: Ο ΑΝΤΙΠΡΟΕΔΡΟΣ του ΟΡ.ΘΕ.	[1349, 2412, 1405, 2417]
svg-text:ΟΡΙΟ ΣΧΕΔΙΟΥ ΠΟΛΗΣ 2025: ΟΡΙΟ ΣΧΕΔΙΟΥ ΠΟΛΗΣ 2025	[1240, 55, 1303, 60]
svg-text:ΠΕΡΙΦΕΡΕΙΑΚΗ ΕΝΟΤΗΤΑ: ΘΕΣΣΑΛΟ: ΠΕΡΙΦΕΡΕΙΑΚΗ ΕΝΟΤΗΤΑ: ΘΕΣΣΑΛΟΝΙΚΗΣ	[1284, 839, 1376, 844]
svg-text:ΠΟΑ - ΠΔ: ΠΟΑ - ΠΔ	[771, 325, 800, 333]
svg-text:ΟΜΑΔΑ ΜΕΛΕΤΗΣ :: ΟΜΑΔΑ ΜΕΛΕΤΗΣ :	[1217, 1430, 1260, 1436]
svg-text:ΕΥΑΓΓΕΛΙΑ ΖΕΪΚΟΥ: ΕΥΑΓΓΕΛΙΑ ΖΕΪΚΟΥ	[1337, 694, 1376, 699]
svg-text:Α: Α	[1210, 1160, 1212, 1164]
svg-text:1 : 5.000: 1 : 5.000	[1232, 829, 1252, 835]
svg-text:ΖΚΣ: ΖΚΣ	[1212, 2022, 1220, 2027]
svg-text:1,70: 1,70	[953, 2194, 965, 2201]
svg-text:ΘΕΣ/ΝΙΚΗ 17.06.2014: ΘΕΣ/ΝΙΚΗ 17.06.2014	[1351, 2381, 1391, 2385]
svg-text:IV: IV	[285, 2135, 292, 2144]
svg-text:IV: IV	[1259, 1951, 1263, 1956]
svg-text:ΕΛΕΓΧΘΗΚΕ: ΕΛΕΓΧΘΗΚΕ	[1312, 2458, 1334, 2462]
svg-text:Μ.Σ.Δ. & ΜΙΚΤΗ ΠΥΚΝΟΤΗΤΑ (κατ.: Μ.Σ.Δ. & ΜΙΚΤΗ ΠΥΚΝΟΤΗΤΑ (κατ./Ha) ανά Π…	[1256, 2002, 1349, 2007]
svg-text:ΠΕΡΙΟΧΗ ΕΝΤΟΣ ΟΡΙΩΝ ΓΠΣ 1995:: ΠΕΡΙΟΧΗ ΕΝΤΟΣ ΟΡΙΩΝ ΓΠΣ 1995: ΠΑΡΑΓΩΓΙΚΕ…	[1240, 145, 1415, 150]
svg-text:5: 5	[721, 1233, 732, 1255]
svg-text:ΧΡΗΣΕΙΣ ΓΗΣ ΣΕ ΠΕΡΙΟΧΕΣ ΟΡΓΑΝΩ: ΧΡΗΣΕΙΣ ΓΗΣ ΣΕ ΠΕΡΙΟΧΕΣ ΟΡΓΑΝΩΜΕΝΗΣ ΑΝΑΠ…	[1225, 972, 1353, 977]
svg-text:Π.Ε.6: Π.Ε.6	[611, 2060, 643, 2074]
svg-text:ΔΗΜΟΤΙΚΗΣ ΕΝΟΤΗΤΑΣ ΜΕΝΕΜΕΝΗΣ: ΔΗΜΟΤΙΚΗΣ ΕΝΟΤΗΤΑΣ ΜΕΝΕΜΕΝΗΣ	[1246, 1396, 1381, 1405]
svg-text:ΤΡΟΠΟΠΟΙΗΣΗ ΓΕΝΙΚΟΥ ΠΟΛΕΟΔΟΜΙΚ: ΤΡΟΠΟΠΟΙΗΣΗ ΓΕΝΙΚΟΥ ΠΟΛΕΟΔΟΜΙΚΟΥ ΣΧΕΔΙΟΥ	[1202, 536, 1387, 545]
svg-text:ΓΝΩΜΟΔΟΤΗΣΗ: ΓΝΩΜΟΔΟΤΗΣΗ	[1349, 2336, 1378, 2341]
svg-text:Εγκρίθηκε σύμφωνα με την εισήγ: Εγκρίθηκε σύμφωνα με την εισήγηση	[1324, 615, 1385, 620]
svg-text:Αρθ.15: Αρθ.15	[1212, 2033, 1224, 2037]
svg-text:2,10: 2,10	[1011, 2084, 1023, 2092]
svg-text:Αναθεώρησης του Γενικού Πολ: Αναθεώρησης του Γενικού Πολεοδομ-	[1241, 2185, 1307, 2189]
svg-text:ΠΕΠ ΠΕΡΙΑΣΤΙΚΟΥ ΠΡΑΣΙΝΟΥ: ΠΕΠ ΠΕΡΙΑΣΤΙΚΟΥ ΠΡΑΣΙΝΟΥ	[1240, 311, 1307, 317]
svg-text:ΚΛΙΜΑΚΑ: ΚΛΙΜΑΚΑ	[1201, 829, 1219, 834]
svg-text:1,20: 1,20	[483, 2047, 495, 2054]
svg-text:ΠΕΡΙΟΧΗ ΕΝΤΟΣ ΟΡΙΩΝ ΓΠΣ 1995:: ΠΕΡΙΟΧΗ ΕΝΤΟΣ ΟΡΙΩΝ ΓΠΣ 1995: ΚΑΤΟΙΚΙΑ (…	[1240, 136, 1364, 141]
svg-text:ΑΒ1α: ΑΒ1α	[346, 508, 362, 516]
svg-text:ΓΝΩΜΟΔΟΤΗΣΗ: ΓΝΩΜΟΔΟΤΗΣΗ	[1324, 610, 1353, 614]
svg-text:Εγκρίθηκε σύμφωνα με την εισήγ: Εγκρίθηκε σύμφωνα με την εισήγηση	[1349, 2342, 1410, 2346]
svg-text:ΠΟΛΙΤΙΣΤΙΚΕΣ ΛΕΙΤΟΥΡΓΙΕΣ: ΠΟΛΙΤΙΣΤΙΚΕΣ ΛΕΙΤΟΥΡΓΙΕΣ	[1335, 1023, 1388, 1028]
svg-text:ΔΗΜΟΥ ΑΜΠΕΛΟΚΗΠΩΝ - ΜΕΝΕΜΕΝΗΣ: ΔΗΜΟΥ ΑΜΠΕΛΟΚΗΠΩΝ - ΜΕΝΕΜΕΝΗΣ :	[1221, 2446, 1304, 2451]
svg-text:ΛΑΧΑΝΑΓΟΡΑ: ΛΑΧΑΝΑΓΟΡΑ	[1246, 1183, 1274, 1188]
svg-text:ΔΗΜΟΥ ΑΜΠΕΛΟΚΗΠΩΝ - ΜΕΝΕΜΕΝΗΣ: ΔΗΜΟΥ ΑΜΠΕΛΟΚΗΠΩΝ - ΜΕΝΕΜΕΝΗΣ :	[1197, 720, 1279, 725]
svg-text:ΠΡΩΤΕΥΩΝ ΑΞΟΝΑΣ (ΑΡΤΗΡΙΑ): ΠΡΩΤΕΥΩΝ ΑΞΟΝΑΣ (ΑΡΤΗΡΙΑ)	[1246, 1284, 1309, 1289]
svg-text:ΓΝΩΜΟΔΟΤΗΣΗ: ΓΝΩΜΟΔΟΤΗΣΗ	[1343, 1460, 1372, 1465]
svg-text:ΙΕΡΑΡΧΗΣΗ ΟΔΙΚΟΥ ΔΙΚΤΥΟΥ: ΙΕΡΑΡΧΗΣΗ ΟΔΙΚΟΥ ΔΙΚΤΥΟΥ	[1225, 1261, 1281, 1265]
svg-text:ΠΕΡΙΦΕΡΕΙΑΚΗ ΕΝΟΤΗΤΑ: ΘΕΣΣΑΛΟ: ΠΕΡΙΦΕΡΕΙΑΚΗ ΕΝΟΤΗΤΑ: ΘΕΣΣΑΛΟΝΙΚΗΣ	[1303, 1689, 1395, 1694]
svg-text:ΙΟΙ: ΙΟΙ	[1222, 2124, 1231, 2131]
svg-text:ΑΝΙΣΟΠΕΔΟΣ ΚΟΜΒΟΣ: ΑΝΙΣΟΠΕΔΟΣ ΚΟΜΒΟΣ	[1246, 1326, 1292, 1331]
svg-text:Π.Ε.5: Π.Ε.5	[764, 2105, 796, 2120]
svg-text:Ι: Ι	[1260, 1927, 1262, 1932]
svg-text:ΠΡΟΝΟΙΑ: ΠΡΟΝΟΙΑ	[1335, 1000, 1354, 1005]
svg-text:ΚΥΡΙΑΚΙΔΗΣ ΗΡΑΚΛΗΣ Γεωλογος: ΚΥΡΙΑΚΙΔΗΣ ΗΡΑΚΛΗΣ Γεωλογος	[1215, 1453, 1280, 1458]
svg-text:ικού Σχεδίου (Γ.Π.Σ.) στη: ικού Σχεδίου (Γ.Π.Σ.) στη Δημοτική	[1321, 1299, 1382, 1304]
svg-text:ΘΕΩΡΗΘΗΚΕ: ΘΕΩΡΗΘΗΚΕ	[1377, 2458, 1400, 2462]
svg-text:ΠΡΩΤΕΥΩΝ ΑΞΟΝΑΣ (ΑΡΤΗΡΙΑ): ΠΡΩΤΕΥΩΝ ΑΞΟΝΑΣ (ΑΡΤΗΡΙΑ)	[1247, 2077, 1310, 2082]
svg-text:ΔΗΜΟΤΙΚΗΣ ΕΝΟΤΗΤΑΣ ΜΕΝΕΜΕΝΗΣ: ΔΗΜΟΤΙΚΗΣ ΕΝΟΤΗΤΑΣ ΜΕΝΕΜΕΝΗΣ	[1227, 546, 1362, 554]
svg-text:ΔΙΚΤΥΟ Α.Ε.: ΔΙΚΤΥΟ Α.Ε.	[1197, 591, 1221, 596]
svg-text:ΗΜΕΡΟΜΗΝΙΑ:: ΗΜΕΡΟΜΗΝΙΑ:	[1201, 839, 1231, 844]
svg-text:ΠΟΑ - ΠΔ: ΠΟΑ - ΠΔ	[687, 405, 716, 412]
svg-text:ΚΕΝΤΡΟ ΥΓΕΙΑΣ: ΚΕΝΤΡΟ ΥΓΕΙΑΣ	[1335, 993, 1366, 997]
svg-text:ΕΠ 2: ΕΠ 2	[221, 252, 235, 260]
svg-text:ΙΣΟΠΕΔΟΣ ΚΟΜΒΟΣ: ΙΣΟΠΕΔΟΣ ΚΟΜΒΟΣ	[1240, 410, 1285, 415]
svg-text:Αρ.βασ. 31/16: Αρ.βασ. 31/16	[1341, 2176, 1389, 2188]
svg-text:ΙΟΥΝΙΟΣ 2014: ΙΟΥΝΙΟΣ 2014	[1232, 839, 1260, 844]
svg-text:1 - 6: 1 - 6	[1214, 955, 1229, 963]
svg-text:ΘΕΣ/ΝΙΚΗ 17.06.2014: ΘΕΣ/ΝΙΚΗ 17.06.2014	[1326, 654, 1366, 658]
svg-text:ΠΟΑ - ΠΔ: ΠΟΑ - ΠΔ	[493, 373, 521, 381]
svg-text:ΙΟΥΝΙΟΣ 2014: ΙΟΥΝΙΟΣ 2014	[1251, 1689, 1279, 1694]
svg-text:✱: ✱	[1206, 321, 1212, 329]
svg-text:ΔΗΜΟΣ ΑΜΠΕΛΟΚΗΠΩΝ - ΜΕΝΕΜΕΝΗΣ: ΔΗΜΟΣ ΑΜΠΕΛΟΚΗΠΩΝ - ΜΕΝΕΜΕΝΗΣ	[1285, 829, 1375, 835]
svg-text:31%: 31%	[55, 884, 67, 906]
svg-text:ΕΚΠΡΟΣΩΠΟΣ ΟΜΑΔΑΣ ΜΕΛΕΤΗΣ: ΕΚΠΡΟΣΩΠΟΣ ΟΜΑΔΑΣ ΜΕΛΕΤΗΣ	[1223, 2458, 1285, 2462]
svg-text:ΙΕΡΑΡΧΗΣΗ ΟΔΙΚΟΥ ΔΙΚΤΥΟΥ: ΙΕΡΑΡΧΗΣΗ ΟΔΙΚΟΥ ΔΙΚΤΥΟΥ	[1239, 2050, 1295, 2055]
svg-text:ΟΡΙΟ ΣΧΕΔΙΟΥ ΠΟΛΗΣ 2020: ΟΡΙΟ ΣΧΕΔΙΟΥ ΠΟΛΗΣ 2020	[1247, 1787, 1303, 1792]
svg-text:από το ηλεκτρονικό αρχείο, έγι: από το ηλεκτρονικό αρχείο, έγινε	[56, 948, 62, 1016]
svg-text:Σ.Δ.: Σ.Δ.	[1287, 1919, 1296, 1924]
svg-text:1: 1	[1038, 1280, 1049, 1302]
svg-text:ΥΠΟΥΡΓΕΙΟ ΠΕΡΙΒΑΛΛΟΝΤΟΣ & ΕΝΕΡ: ΥΠΟΥΡΓΕΙΟ ΠΕΡΙΒΑΛΛΟΝΤΟΣ & ΕΝΕΡΓΕΙΑΣ	[1302, 428, 1391, 433]
svg-text:ΑΒ3β: ΑΒ3β	[86, 256, 102, 263]
svg-text:ΕΜΟ: ΕΜΟ	[811, 1218, 824, 1224]
svg-text:ΑΒ2α: ΑΒ2α	[286, 182, 302, 189]
svg-text:94: 94	[777, 2144, 784, 2152]
svg-text:ΑΒ2β: ΑΒ2β	[317, 378, 333, 386]
svg-text:ΟΡΙΟ ΤΟΠΙΚΟΥ ΡΥΜΟΤΟΜΙΚΟΥ: ΟΡΙΟ ΤΟΠΙΚΟΥ ΡΥΜΟΤΟΜΙΚΟΥ	[1247, 1822, 1309, 1827]
svg-text:ΠΑΙΔΙΚΟΣ ΣΤΑΘΜΟΣ: ΠΑΙΔΙΚΟΣ ΣΤΑΘΜΟΣ	[1335, 1008, 1374, 1012]
svg-text:Σχ.4: Σχ.4	[1376, 1268, 1391, 1277]
svg-text:ΠΕΡΙΟΧΕΣ ΟΡΓΑΝΩΜΕΝΗΣ ΑΝΑΠΤΥΞΗΣ: ΠΕΡΙΟΧΕΣ ΟΡΓΑΝΩΜΕΝΗΣ ΑΝΑΠΤΥΞΗΣ (ΠΟΑ)	[1225, 125, 1330, 131]
svg-text:0,77: 0,77	[774, 2132, 786, 2140]
svg-text:ΕΜΟ: ΕΜΟ	[612, 1273, 625, 1279]
svg-text:ΠΟΑ-ΠΔ: ΠΟΑ-ΠΔ	[1204, 145, 1220, 150]
svg-text:509: 509	[1012, 2096, 1023, 2104]
svg-text:ΕΚΠΡΟΣΩΠΟΣ ΟΜΑΔΑΣ ΜΕΛΕΤΗΣ: ΕΚΠΡΟΣΩΠΟΣ ΟΜΑΔΑΣ ΜΕΛΕΤΗΣ	[1199, 731, 1260, 735]
svg-text:ΥΠΟΜΝΗΜΑ: ΥΠΟΜΝΗΜΑ	[1278, 872, 1332, 882]
svg-text:ΟΜΑΔΑ ΕΠΙΒΛΕΨΗΣ: ΟΜΑΔΑ ΕΠΙΒΛΕΨΗΣ	[1215, 1558, 1256, 1563]
svg-text:Συνεδρία 10η Πράξη 3/10/17.06: Συνεδρία 10η Πράξη 3/10/17.06.2014	[1349, 2331, 1411, 2336]
svg-text:ΕΠ 1: ΕΠ 1	[429, 278, 443, 285]
svg-text:Σχ.4: Σχ.4	[1258, 470, 1273, 478]
svg-text:ΑΒ3α: ΑΒ3α	[340, 255, 356, 262]
svg-text:ΕΥΑΓΓΕΛΙΑ ΖΕΪΚΟΥ: ΕΥΑΓΓΕΛΙΑ ΖΕΪΚΟΥ	[1356, 1544, 1394, 1549]
svg-text:ΟΡΙΟ ΔΗΜΟΤΙΚΗΣ ΕΝΟΤΗΤΑΣ ΜΕΝΕΜΕ: ΟΡΙΟ ΔΗΜΟΤΙΚΗΣ ΕΝΟΤΗΤΑΣ ΜΕΝΕΜΕΝΗΣ	[1247, 1779, 1335, 1784]
svg-text:ΟΡΙΟ ΤΟΜΕΩΝ ΟΡΩΝ ΔΟΜΗΣΗΣ: ΟΡΙΟ ΤΟΜΕΩΝ ΟΡΩΝ ΔΟΜΗΣΗΣ	[1247, 1878, 1311, 1883]
svg-text:ΕΚΠΑΙΔΕΥΣΗ: ΕΚΠΑΙΔΕΥΣΗ	[1231, 1025, 1257, 1030]
